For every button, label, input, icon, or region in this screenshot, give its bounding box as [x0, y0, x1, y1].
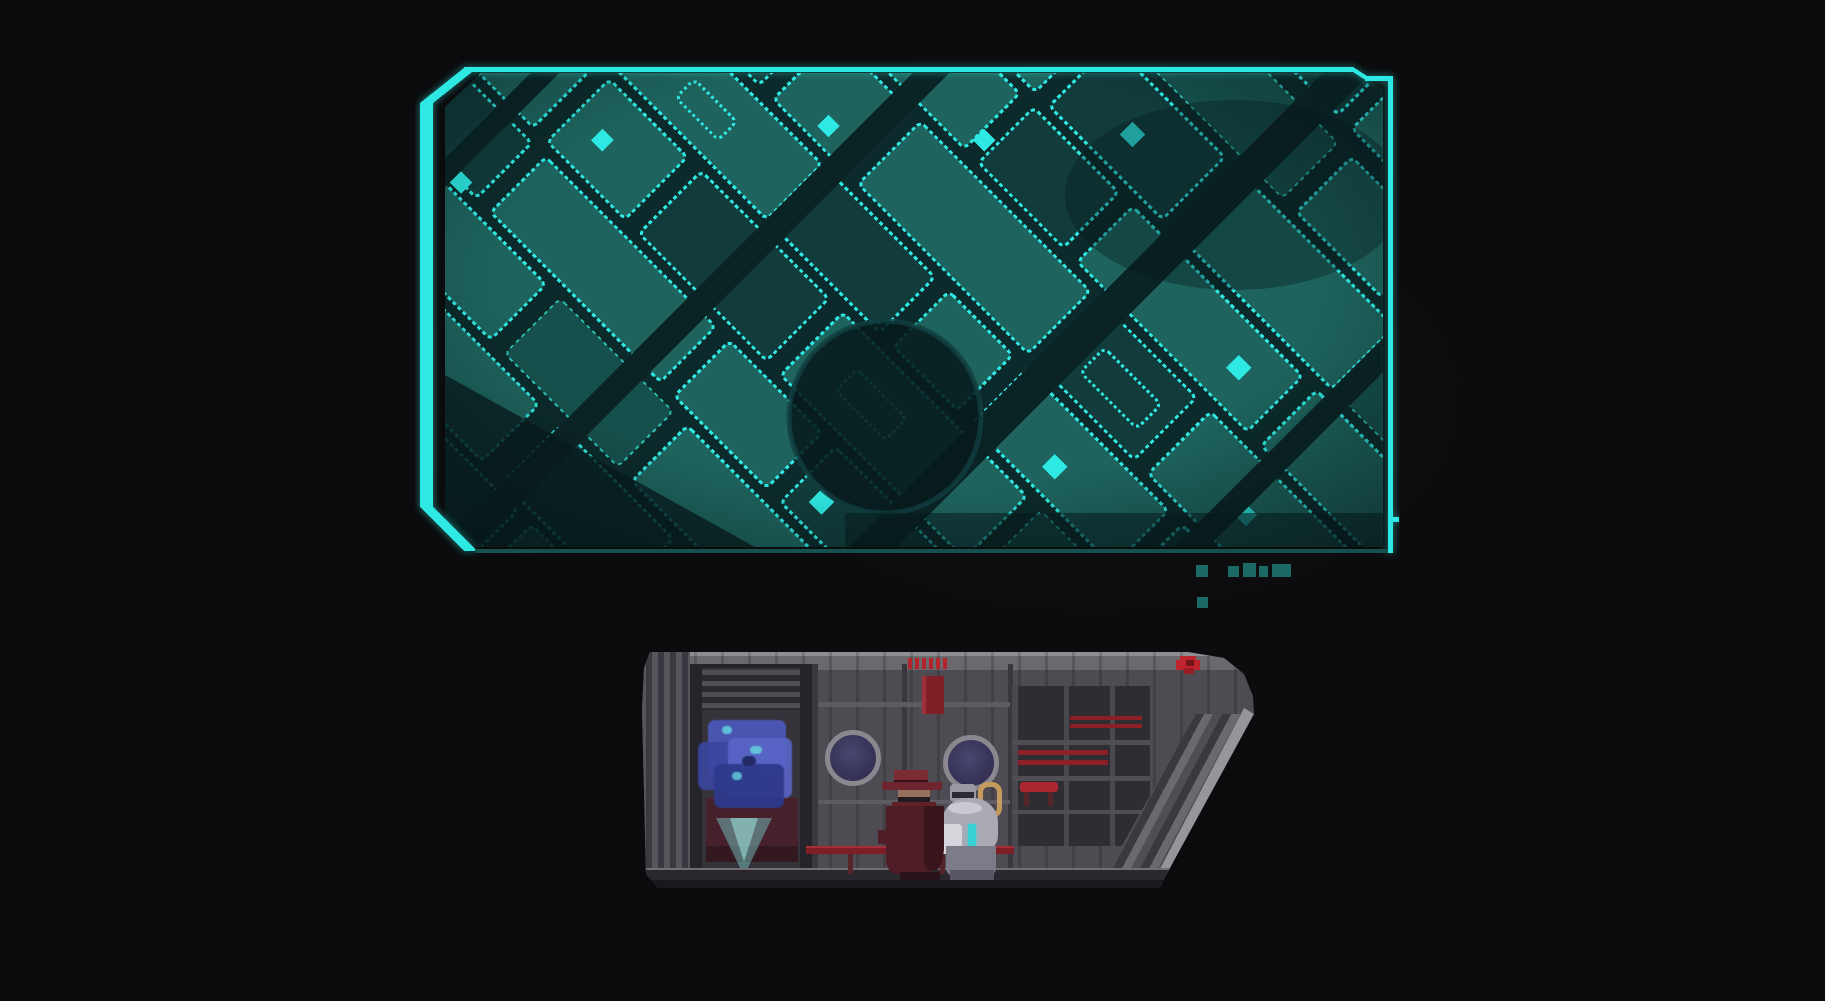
red-tubes	[1018, 760, 1108, 765]
map-content	[415, 45, 1400, 560]
porthole	[825, 730, 881, 786]
rack-post	[1012, 686, 1018, 846]
red-tubes	[1070, 724, 1142, 728]
game-screen	[0, 0, 1825, 1001]
dropship-cabin	[640, 650, 1256, 890]
vent-slats	[702, 670, 800, 710]
hud-glyph	[1196, 565, 1208, 577]
holo-fleck	[722, 726, 732, 734]
frame-right-tick	[1393, 517, 1399, 522]
hazard-marking	[908, 658, 950, 669]
hud-glyph	[1259, 566, 1268, 577]
rack-shelf	[1012, 776, 1150, 781]
figure-cloak-shade	[924, 806, 944, 870]
map-vignette	[415, 45, 1400, 560]
hull-emblem-icon	[1186, 660, 1194, 666]
hud-glyph	[1272, 564, 1291, 577]
railing-post	[848, 854, 853, 874]
frame-top-line	[464, 67, 1353, 72]
cloaked-figure	[878, 768, 950, 880]
storage-rack	[1012, 686, 1150, 846]
frame-left-bar	[420, 103, 433, 507]
red-canister	[922, 676, 944, 714]
wall-rail-line	[818, 702, 1010, 707]
holo-fleck	[750, 746, 762, 754]
holographic-city-map	[415, 45, 1400, 560]
companion-legs	[950, 870, 994, 880]
hud-glyph	[1228, 566, 1239, 577]
projector-beam-core	[730, 818, 758, 862]
holo-blob	[714, 764, 784, 808]
figure-arm	[878, 830, 896, 844]
hud-glyph	[1243, 563, 1256, 577]
companion-highlight	[948, 802, 982, 814]
hud-glyph	[1197, 597, 1208, 608]
red-tubes	[1070, 716, 1142, 720]
city-map-display	[415, 45, 1400, 560]
figure-face	[898, 790, 930, 797]
ship-hull	[640, 650, 1256, 890]
holo-pixel	[742, 756, 756, 766]
rack-post	[1064, 686, 1069, 846]
red-tubes	[1018, 750, 1108, 755]
rack-post	[1110, 686, 1115, 846]
red-stool-seat	[1020, 782, 1058, 792]
nose-ribs	[640, 650, 690, 890]
frame-bottom-dim-line	[475, 549, 1388, 553]
rack-shelf	[1012, 740, 1150, 745]
frame-right-line	[1388, 76, 1393, 553]
holographic-projection	[698, 716, 798, 820]
rack-shelf	[1012, 810, 1150, 814]
holo-fleck	[732, 772, 742, 780]
stool-leg	[1048, 792, 1053, 806]
figure-hat-brim	[882, 782, 942, 790]
city-block	[1396, 256, 1400, 424]
floor-shadow	[640, 880, 1256, 890]
stool-leg	[1024, 792, 1029, 806]
figure-legs	[900, 872, 940, 880]
hull-emblem-icon	[1184, 668, 1194, 674]
